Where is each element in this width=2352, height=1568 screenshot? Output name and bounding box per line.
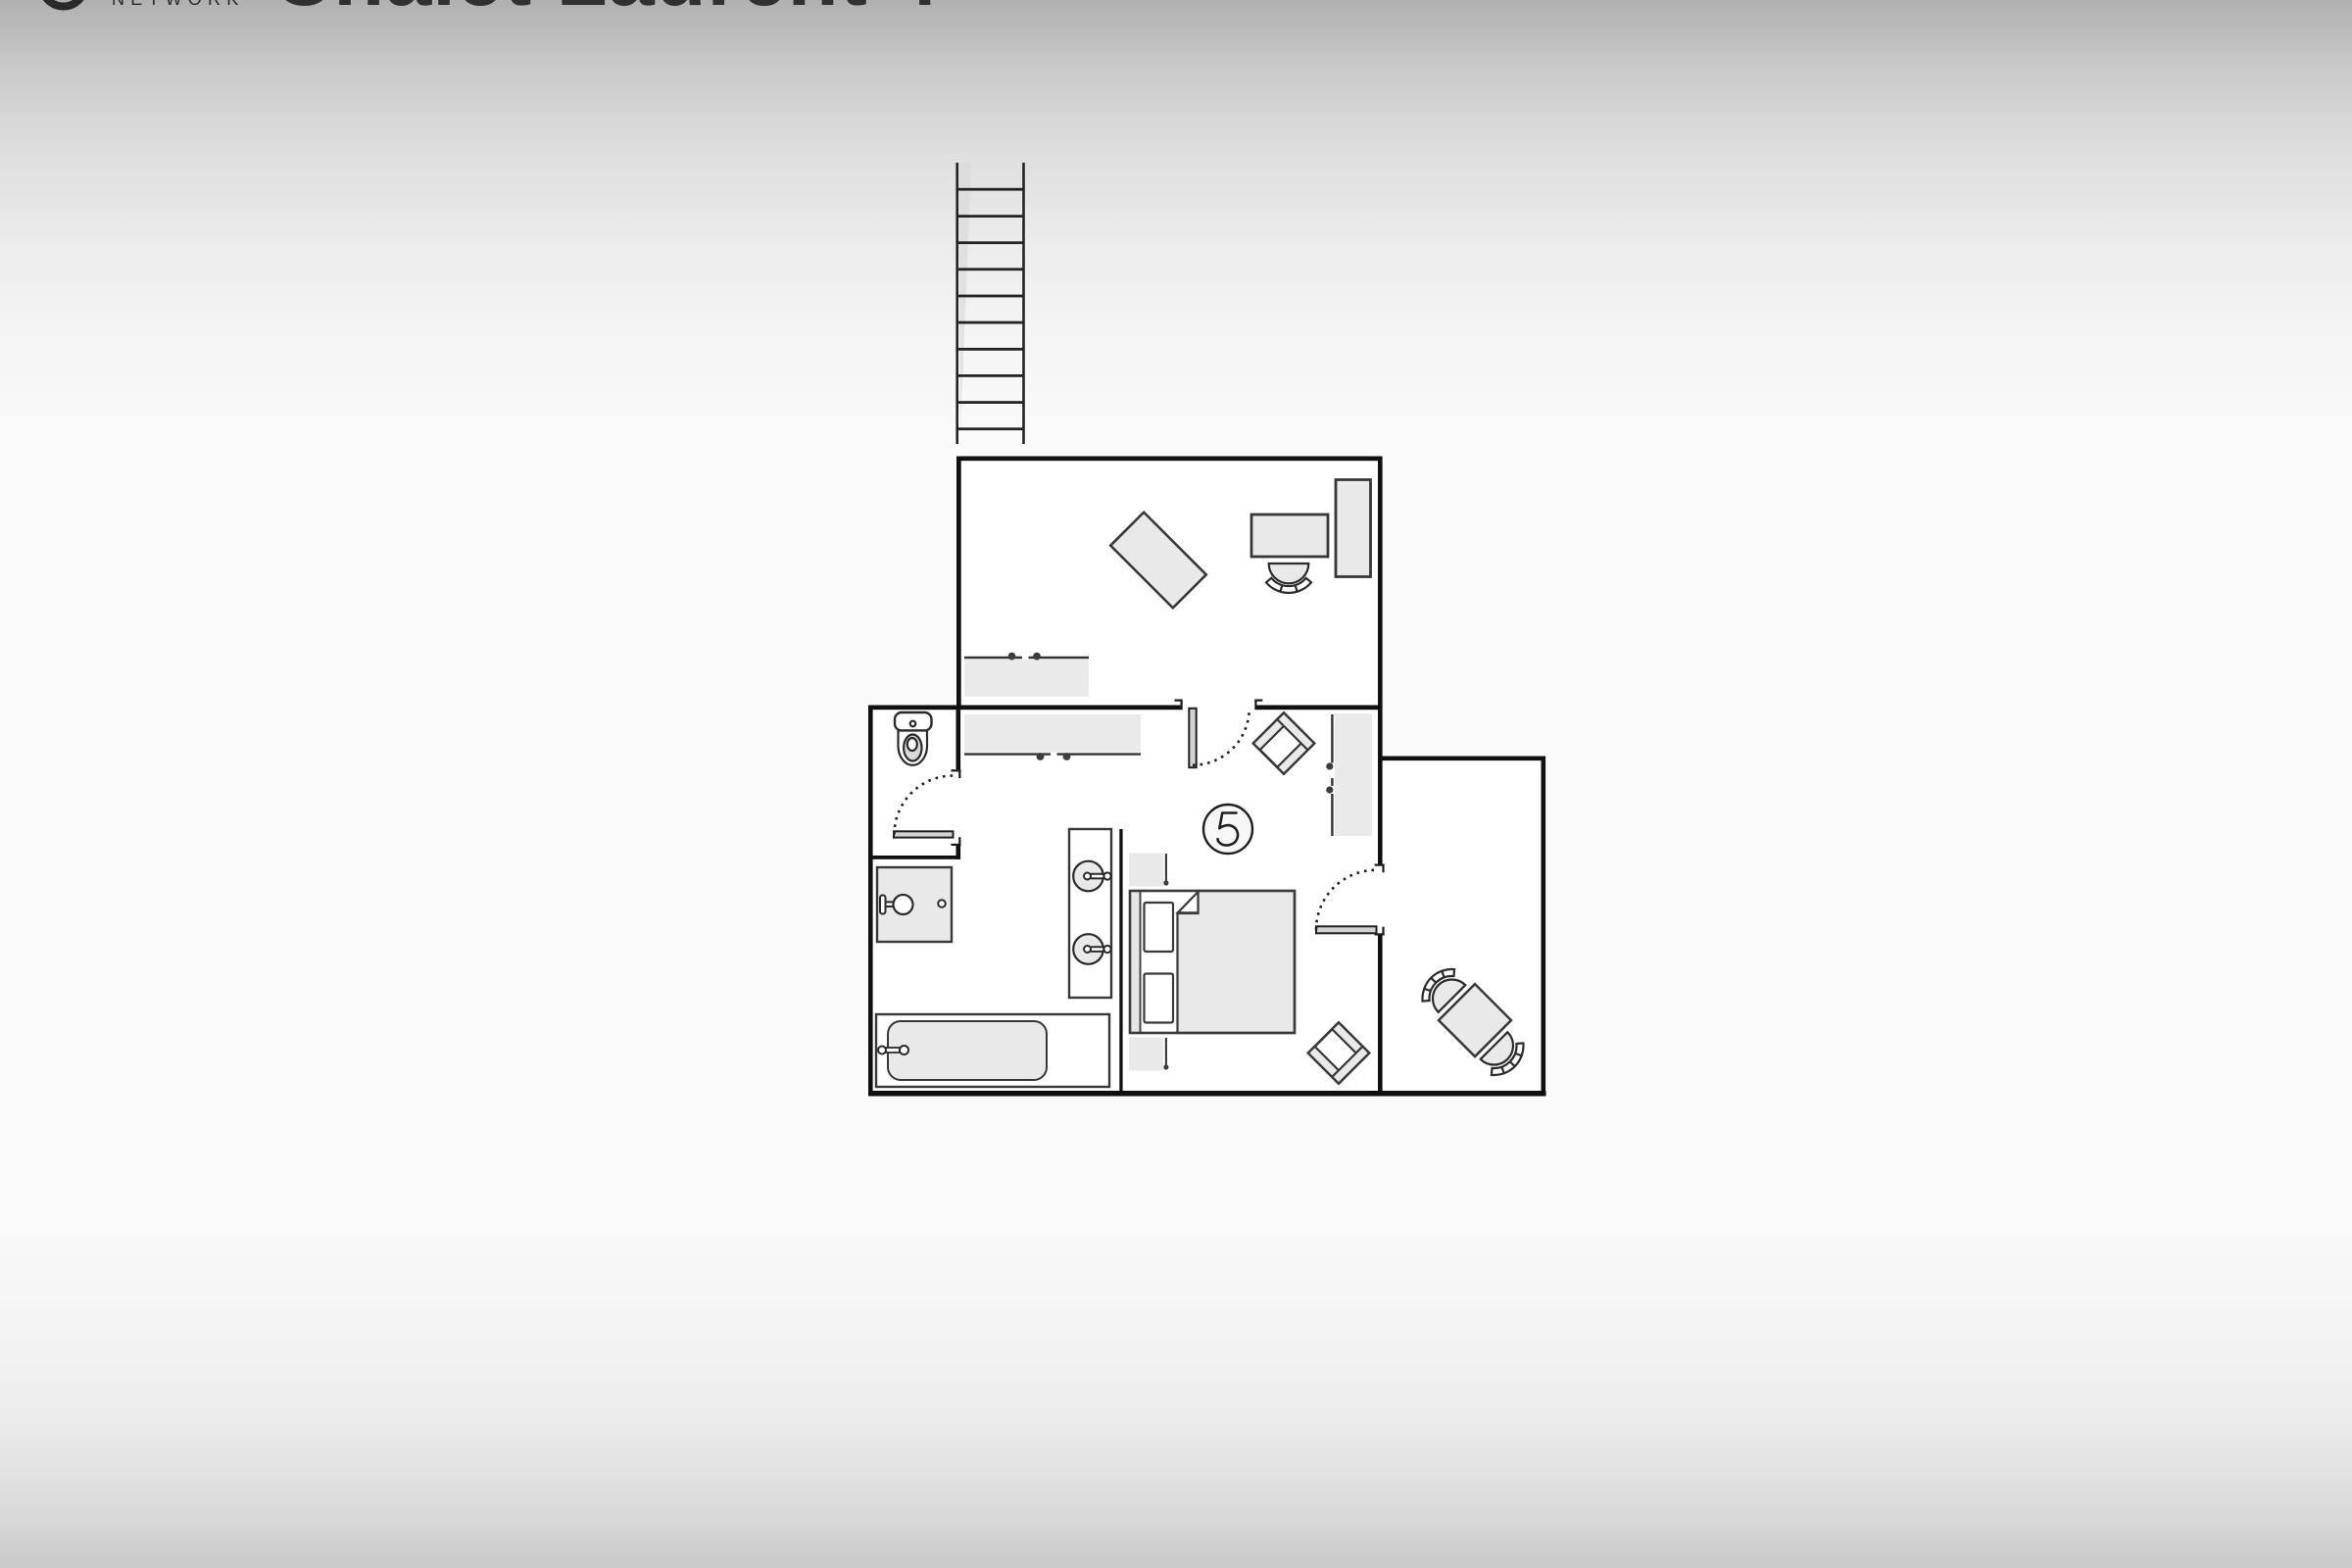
svg-text:Chalet Laurent 4: Chalet Laurent 4 [272, 0, 939, 24]
svg-text:NETWORK: NETWORK [112, 0, 244, 9]
